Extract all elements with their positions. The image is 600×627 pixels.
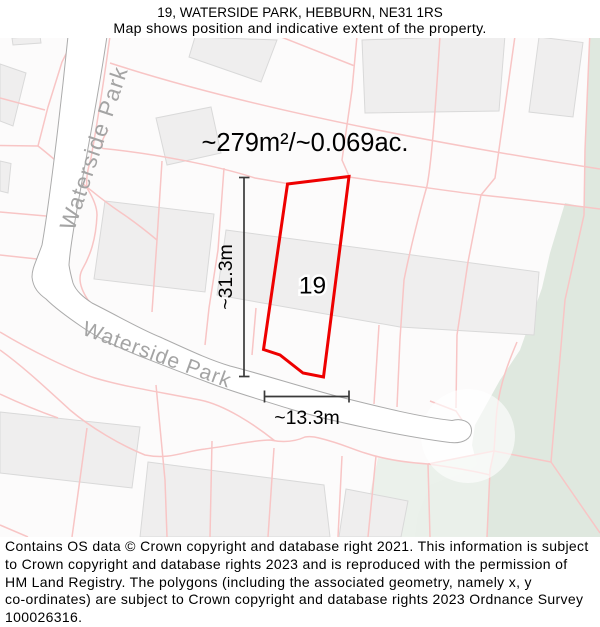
svg-text:~31.3m: ~31.3m bbox=[215, 244, 237, 310]
svg-text:~13.3m: ~13.3m bbox=[274, 407, 340, 429]
svg-text:19: 19 bbox=[299, 273, 326, 300]
svg-text:~279m²/~0.069ac.: ~279m²/~0.069ac. bbox=[202, 129, 409, 157]
